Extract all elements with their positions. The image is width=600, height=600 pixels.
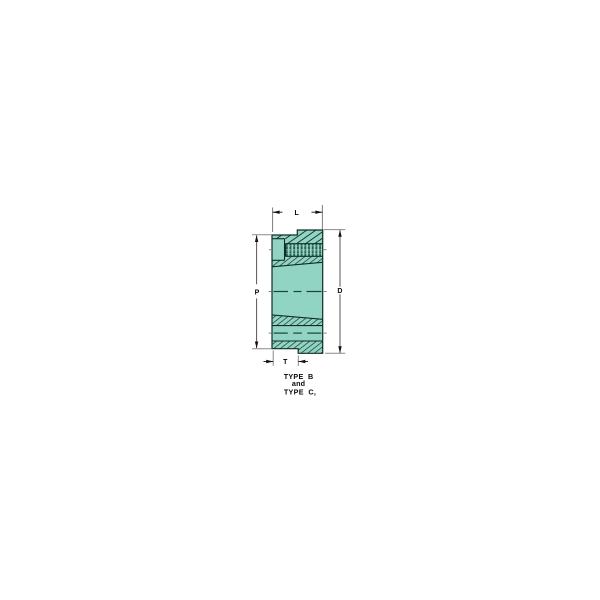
svg-text:TYPE C,: TYPE C,: [284, 387, 316, 396]
svg-text:L: L: [294, 210, 299, 217]
svg-text:D: D: [337, 288, 342, 295]
svg-text:P: P: [255, 290, 260, 297]
svg-text:T: T: [283, 359, 288, 366]
